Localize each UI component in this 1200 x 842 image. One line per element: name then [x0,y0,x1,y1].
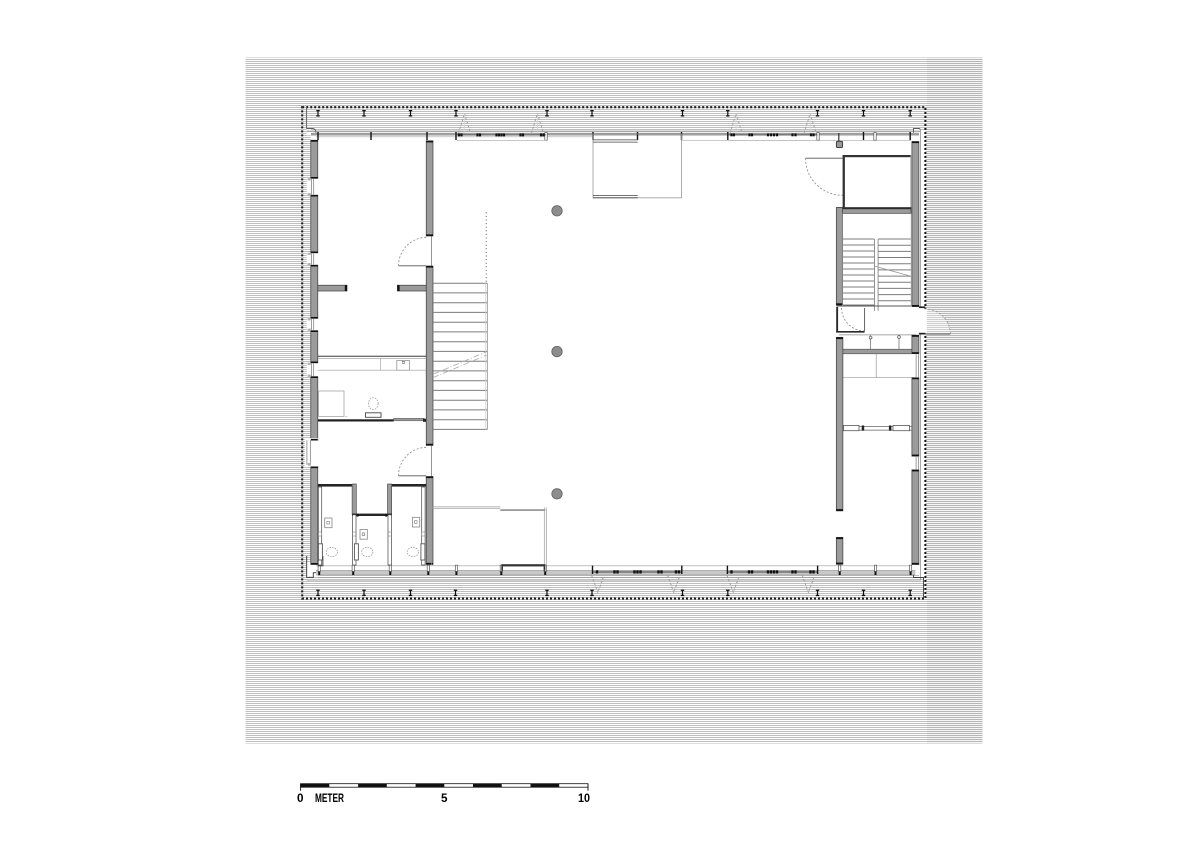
svg-text:0: 0 [297,793,304,805]
svg-text:METER: METER [315,793,345,805]
svg-text:5: 5 [441,793,448,805]
svg-text:10: 10 [578,793,590,805]
